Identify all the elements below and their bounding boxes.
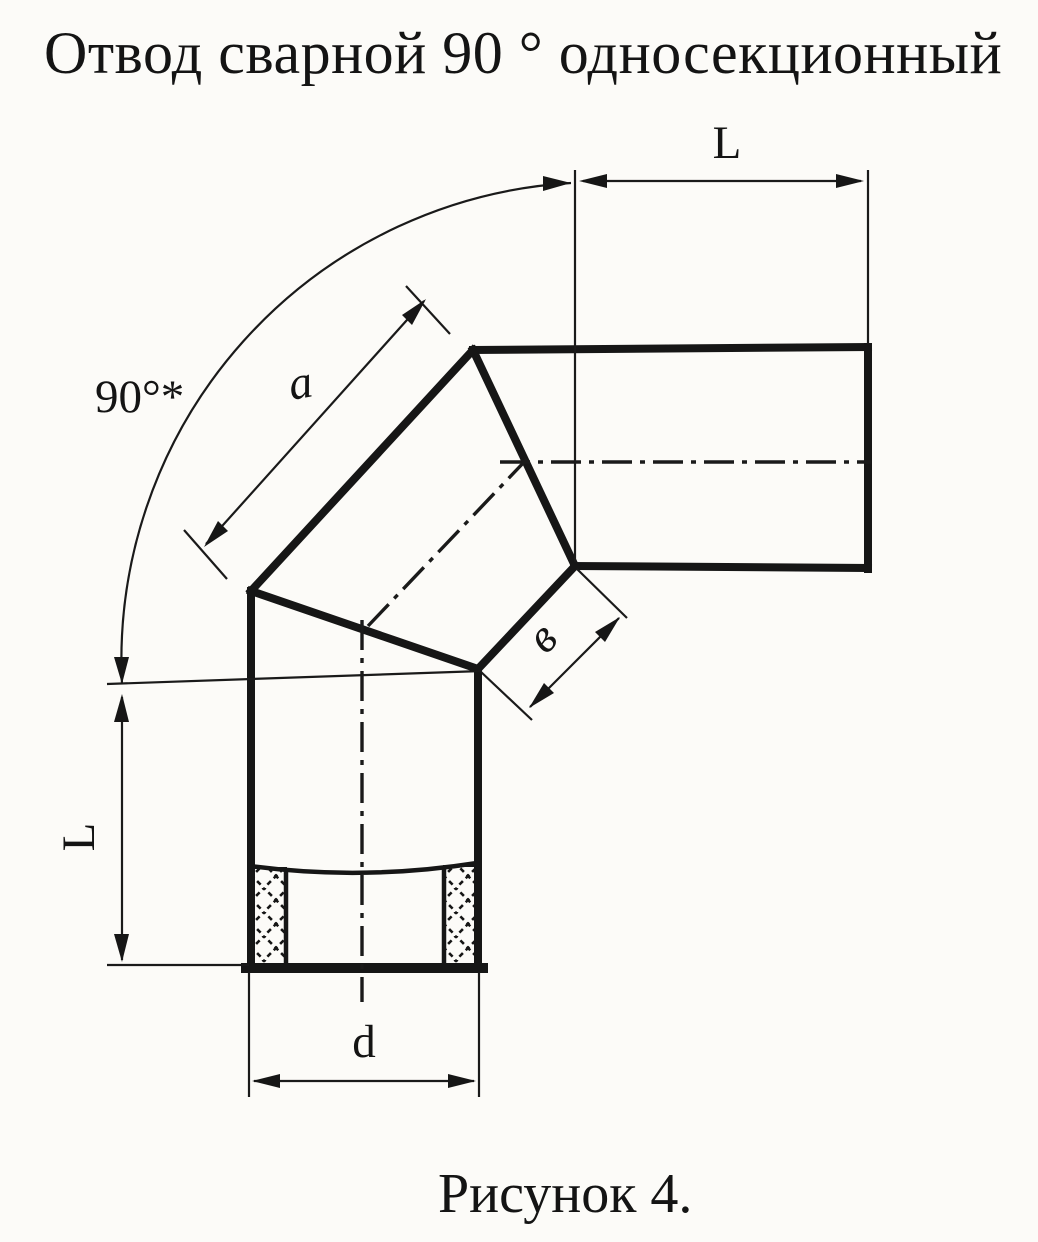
figure-caption: Рисунок 4. [438, 1164, 692, 1226]
reference-line-shoulder [107, 671, 482, 684]
arrowhead-arc-top [543, 176, 571, 191]
dim-d: d [249, 972, 479, 1097]
sleeve-left-wall-hatch [253, 868, 286, 965]
angle-arc [121, 183, 571, 684]
label-L-left: L [53, 823, 105, 852]
arrowhead-arc-bottom [114, 657, 129, 684]
sleeve-right-wall-hatch [444, 866, 476, 965]
label-a: a [284, 356, 316, 411]
extension-line-b-lower [480, 671, 532, 720]
arrowhead-L-left-up [114, 694, 129, 722]
arrowhead-L-top-right [836, 174, 864, 188]
arrowhead-d-right [448, 1074, 476, 1088]
dim-line-a [206, 301, 424, 544]
horizontal-pipe-bottom-edge [574, 566, 868, 568]
elbow-outer-edge [251, 350, 473, 591]
scanned-figure-page: Отвод сварной 90 ° односекционный [0, 0, 1038, 1242]
arrowhead-L-top-left [579, 174, 607, 188]
gore-diagonal-centerline [368, 459, 527, 626]
label-b: в [516, 612, 568, 663]
centerlines [362, 459, 871, 1002]
tick-a-bottom [184, 530, 227, 579]
elbow-technical-drawing: L 90°* L a [0, 0, 1038, 1242]
horizontal-pipe-top-edge [473, 347, 868, 350]
arrowhead-L-left-down [114, 934, 129, 962]
upper-weld-seam [473, 350, 575, 566]
dim-a: a [184, 286, 450, 579]
dim-angle-arc: 90°* [95, 176, 571, 684]
extension-line-b-upper [577, 569, 627, 618]
label-d: d [352, 1016, 376, 1068]
label-L-top: L [713, 117, 742, 169]
label-angle: 90°* [95, 371, 184, 423]
arrowhead-d-left [252, 1074, 280, 1088]
lower-weld-seam [251, 591, 478, 669]
dim-L-top: L [575, 117, 868, 562]
